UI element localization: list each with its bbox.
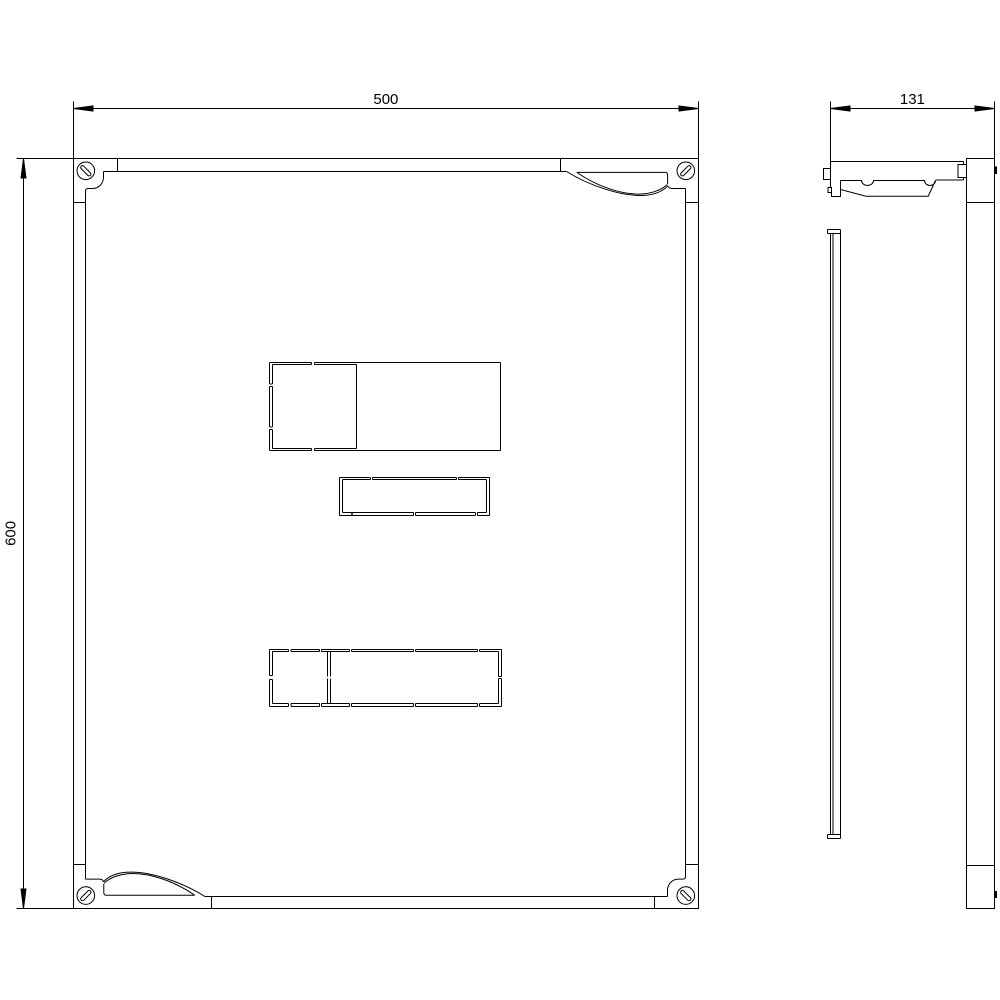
svg-text:500: 500 [373, 91, 398, 108]
svg-text:600: 600 [3, 521, 20, 546]
svg-text:131: 131 [900, 91, 925, 108]
